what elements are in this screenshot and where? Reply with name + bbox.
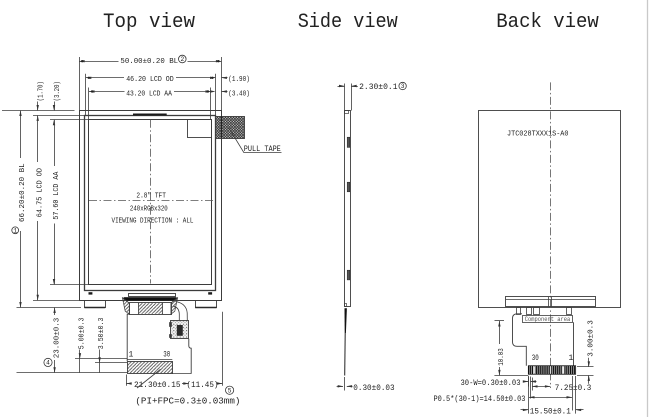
- svg-text:(3.40): (3.40): [228, 90, 250, 98]
- svg-text:(11.45): (11.45): [187, 380, 219, 390]
- svg-text:2.30±0.1: 2.30±0.1: [359, 83, 398, 92]
- svg-text:46.20 LCD OD: 46.20 LCD OD: [126, 76, 174, 84]
- svg-text:30: 30: [532, 354, 539, 363]
- svg-text:3.50±0.3: 3.50±0.3: [98, 317, 106, 349]
- svg-text:1: 1: [129, 351, 134, 360]
- svg-text:5: 5: [228, 387, 232, 394]
- svg-text:5.00±0.3: 5.00±0.3: [79, 317, 87, 349]
- svg-text:3.00±0.3: 3.00±0.3: [587, 320, 595, 357]
- svg-text:66.20±0.20 BL: 66.20±0.20 BL: [19, 163, 27, 222]
- svg-text:2: 2: [180, 56, 184, 63]
- svg-text:50.00±0.20 BL: 50.00±0.20 BL: [120, 58, 178, 66]
- svg-text:(1.90): (1.90): [228, 76, 250, 84]
- svg-text:10.03: 10.03: [498, 348, 506, 366]
- svg-text:Back view: Back view: [496, 11, 599, 34]
- svg-text:3: 3: [401, 83, 405, 90]
- svg-text:PULL TAPE: PULL TAPE: [244, 146, 281, 154]
- svg-text:1: 1: [13, 228, 17, 235]
- svg-text:57.60 LCD AA: 57.60 LCD AA: [53, 171, 61, 219]
- svg-text:Top view: Top view: [103, 11, 196, 34]
- svg-text:Component area: Component area: [525, 316, 571, 323]
- svg-text:Side view: Side view: [298, 11, 399, 34]
- svg-text:VIEWING DIRECTION : ALL: VIEWING DIRECTION : ALL: [112, 218, 194, 226]
- svg-text:2.8" TFT: 2.8" TFT: [136, 193, 166, 201]
- svg-text:(PI+FPC=0.3±0.03mm): (PI+FPC=0.3±0.03mm): [135, 396, 240, 407]
- svg-text:43.20 LCD AA: 43.20 LCD AA: [126, 90, 172, 98]
- svg-text:(1.70): (1.70): [37, 81, 45, 101]
- svg-text:(3.20): (3.20): [54, 81, 62, 101]
- svg-text:1: 1: [569, 354, 574, 363]
- svg-text:JTC028TXXX1S-A0: JTC028TXXX1S-A0: [507, 131, 569, 139]
- svg-text:7.25±0.3: 7.25±0.3: [555, 384, 592, 393]
- svg-text:P0.5*(30-1)=14.50±0.03: P0.5*(30-1)=14.50±0.03: [434, 395, 526, 404]
- svg-text:15.50±0.1: 15.50±0.1: [530, 407, 571, 416]
- svg-text:240xRGBx320: 240xRGBx320: [130, 206, 168, 214]
- svg-text:64.75 LCD OD: 64.75 LCD OD: [36, 168, 44, 218]
- svg-text:30-W=0.30±0.03: 30-W=0.30±0.03: [461, 379, 521, 388]
- svg-text:30: 30: [163, 351, 170, 360]
- svg-text:0.30±0.03: 0.30±0.03: [353, 384, 394, 393]
- svg-text:23.00±0.3: 23.00±0.3: [53, 317, 61, 358]
- svg-text:4: 4: [46, 360, 50, 367]
